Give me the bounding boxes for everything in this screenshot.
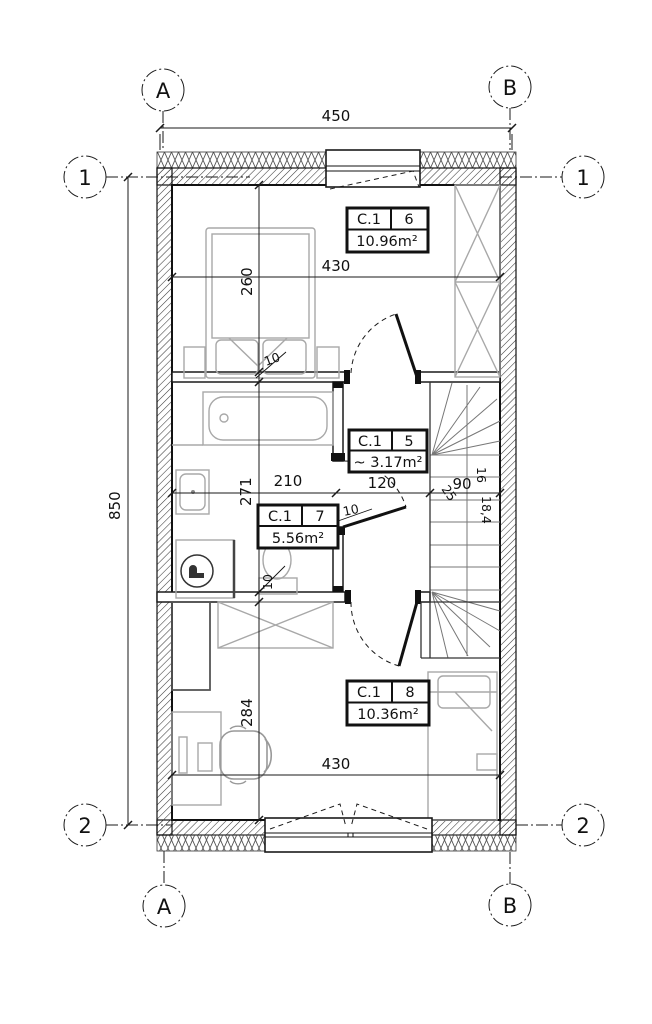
room-unit: C.1 xyxy=(358,434,382,450)
dim-room6-width: 430 xyxy=(322,257,351,275)
wall-bath-room8 xyxy=(157,592,345,602)
wardrobe-icon-room6 xyxy=(455,185,500,377)
keyboard-icon xyxy=(198,743,212,771)
door-jamb xyxy=(345,590,351,604)
dim-room8-height: 284 xyxy=(238,698,256,727)
axis-circle-2-left: 2 xyxy=(64,804,106,846)
dim-total-height: 850 xyxy=(106,491,124,520)
room-unit: C.1 xyxy=(357,685,381,701)
room-number: 8 xyxy=(405,685,414,701)
axis-label: 1 xyxy=(576,166,589,190)
exterior-wall-right xyxy=(500,168,516,835)
washing-machine-icon xyxy=(176,540,234,598)
axis-circle-2-right: 2 xyxy=(562,804,604,846)
axis-label: B xyxy=(503,76,517,100)
desk-icon xyxy=(172,712,221,805)
door-leaf xyxy=(399,602,417,666)
dim-wall-thickness: 10 xyxy=(262,349,282,369)
axis-label: A xyxy=(157,895,172,919)
window-top xyxy=(326,150,420,189)
cabinet-icon xyxy=(172,602,210,690)
sink-icon xyxy=(176,470,209,514)
room-number: 7 xyxy=(315,509,324,525)
room-number: 6 xyxy=(404,212,413,228)
axis-label: 1 xyxy=(78,166,91,190)
dim-room6-height: 260 xyxy=(238,267,256,296)
monitor-icon xyxy=(179,737,187,773)
dim-hall-width: 120 xyxy=(368,474,397,492)
windows xyxy=(265,150,432,852)
room-label-c1-7: C.1 7 5.56m² xyxy=(258,505,338,548)
furniture xyxy=(172,185,500,820)
dim-bath-height: 271 xyxy=(237,477,255,506)
room-label-c1-8: C.1 8 10.36m² xyxy=(347,681,429,725)
door-swing-arc xyxy=(351,602,399,666)
dim-total-width: 450 xyxy=(322,107,351,125)
door-jamb xyxy=(331,453,345,461)
axis-circle-b-top: B xyxy=(489,66,531,108)
stair-riser-count: 16 xyxy=(474,467,489,483)
axis-circle-1-left: 1 xyxy=(64,156,106,198)
dim-line-450 xyxy=(160,128,512,150)
wall-junction xyxy=(333,586,343,592)
door-room6 xyxy=(351,314,417,377)
room-area: ~ 3.17m² xyxy=(354,455,423,471)
single-bed-icon xyxy=(428,672,497,820)
room-unit: C.1 xyxy=(268,509,292,525)
door-room8 xyxy=(351,602,417,666)
dim-wall-thickness: 10 xyxy=(260,574,275,590)
room-unit: C.1 xyxy=(357,212,381,228)
axis-circle-b-bottom: B xyxy=(489,884,531,926)
axis-label: B xyxy=(503,894,517,918)
exterior-wall-left xyxy=(157,168,172,835)
stair-riser-height: 18,4 xyxy=(479,496,494,524)
wall-bath-hall-upper xyxy=(333,382,343,461)
axis-circle-a-top: A xyxy=(142,69,184,111)
floor-plan-page: 450 850 430 260 271 284 210 120 90 430 1… xyxy=(0,0,652,1024)
axis-label: 2 xyxy=(576,814,589,838)
room-area: 5.56m² xyxy=(272,531,324,547)
axis-label: 2 xyxy=(78,814,91,838)
wardrobe-icon-room8 xyxy=(218,602,333,648)
door-jamb xyxy=(344,370,350,384)
axis-markers: A B 1 1 2 2 A B xyxy=(64,66,604,927)
room-area: 10.96m² xyxy=(356,234,417,250)
room-area: 10.36m² xyxy=(357,707,418,723)
door-swing-arc xyxy=(351,314,396,373)
axis-circle-1-right: 1 xyxy=(562,156,604,198)
room-label-c1-6: C.1 6 10.96m² xyxy=(347,208,428,252)
room-number: 5 xyxy=(404,434,413,450)
axis-circle-a-bottom: A xyxy=(143,885,185,927)
stair-winder-top xyxy=(432,383,500,455)
dim-wall-thickness: 10 xyxy=(342,501,361,519)
dim-room8-width: 430 xyxy=(322,755,351,773)
room-label-c1-5: C.1 5 ~ 3.17m² xyxy=(349,430,427,472)
window-bottom xyxy=(265,804,432,852)
bathtub-icon xyxy=(172,392,333,445)
wall-junction xyxy=(333,382,343,388)
floor-plan-drawing: 450 850 430 260 271 284 210 120 90 430 1… xyxy=(0,0,652,1024)
door-leaf xyxy=(396,314,417,377)
axis-label: A xyxy=(156,79,171,103)
dim-bath-width: 210 xyxy=(274,472,303,490)
